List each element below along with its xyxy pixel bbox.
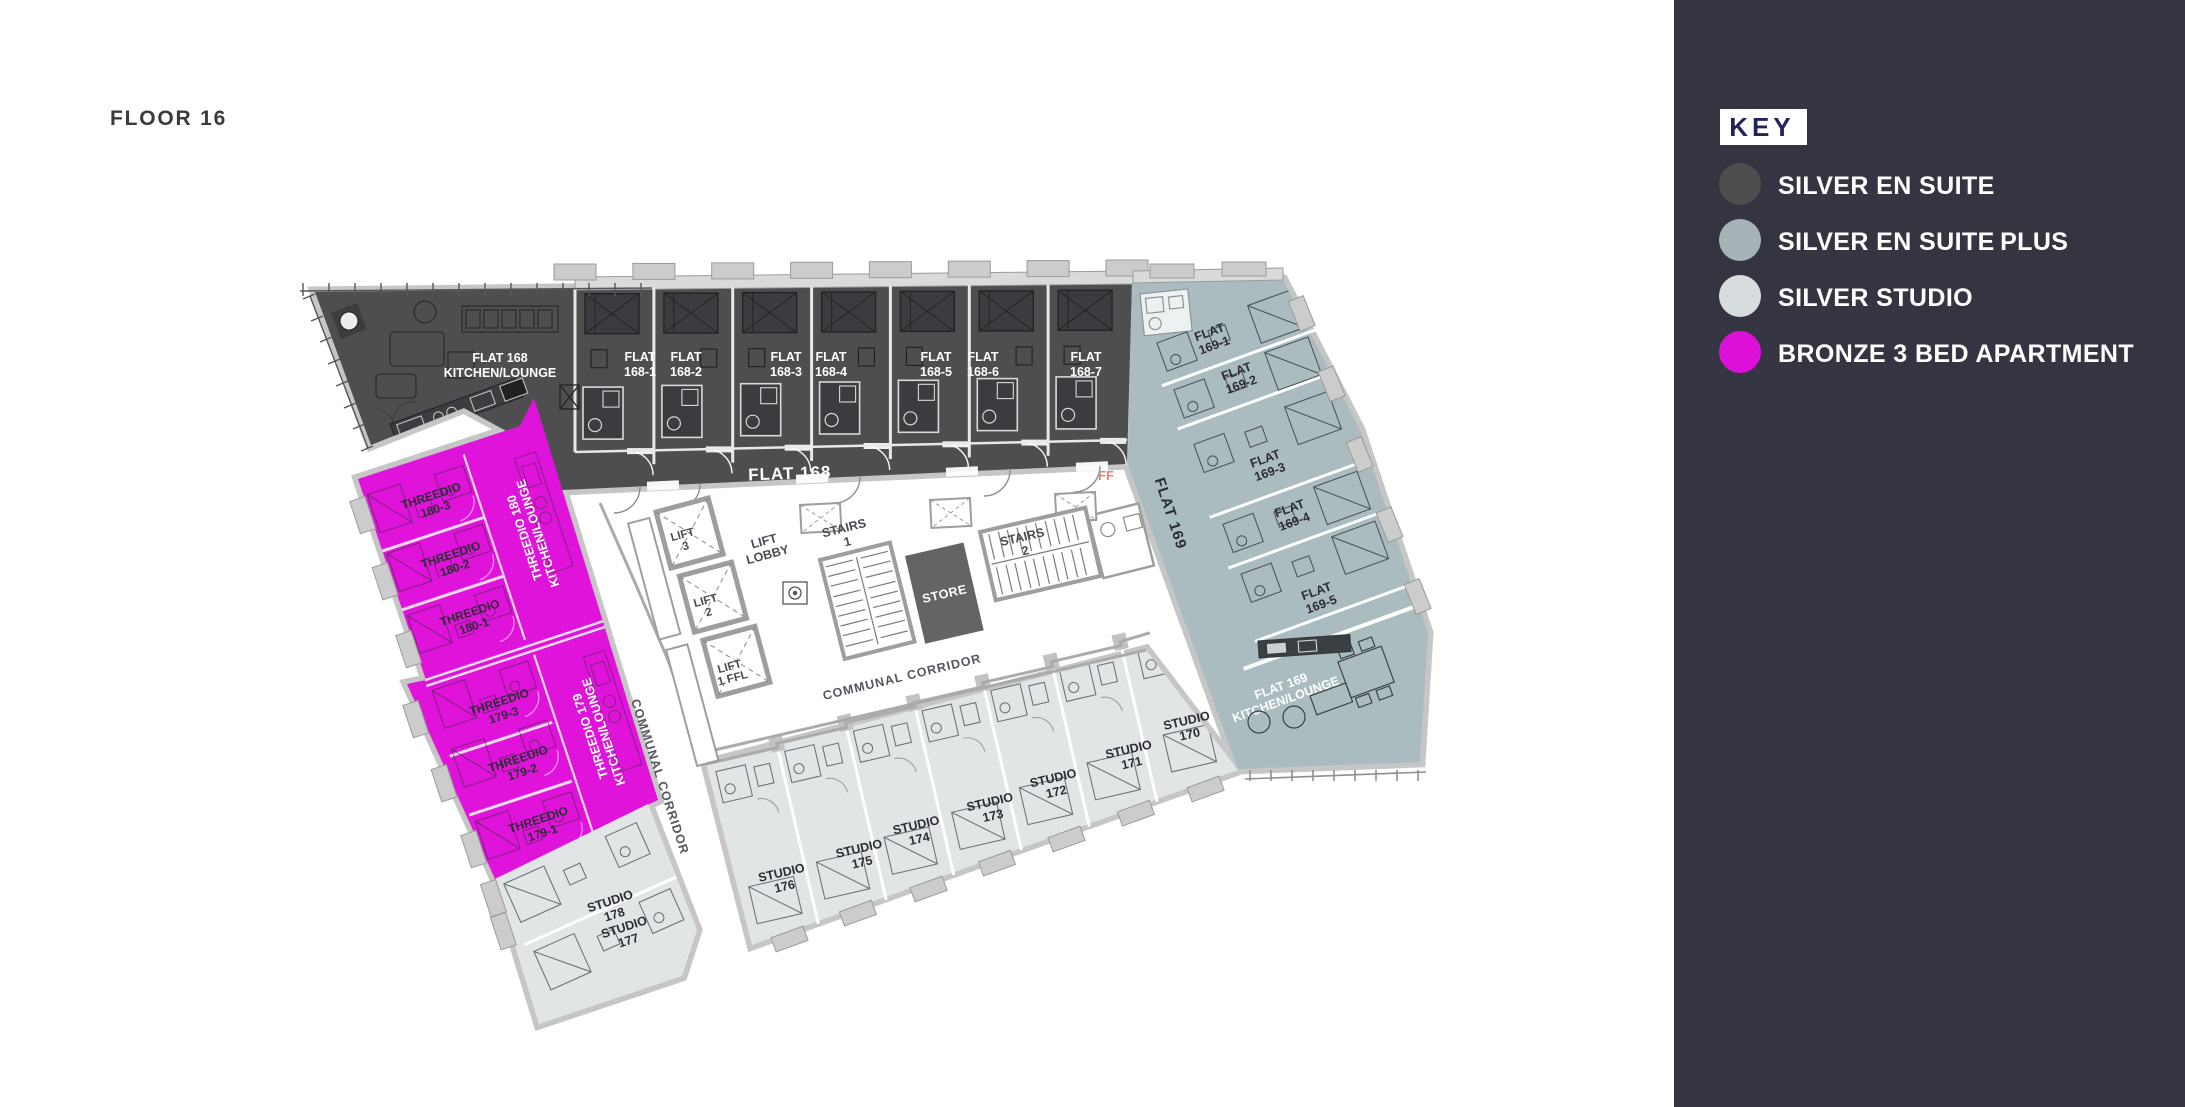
svg-text:BRONZE 3 BED APARTMENT: BRONZE 3 BED APARTMENT bbox=[1778, 340, 2134, 368]
svg-text:168-4: 168-4 bbox=[815, 365, 847, 379]
svg-text:FLAT: FLAT bbox=[1070, 350, 1101, 364]
svg-text:168-5: 168-5 bbox=[920, 365, 952, 379]
svg-text:SILVER EN SUITE PLUS: SILVER EN SUITE PLUS bbox=[1778, 228, 2068, 256]
svg-text:FLAT: FLAT bbox=[770, 350, 801, 364]
svg-text:168-6: 168-6 bbox=[967, 365, 999, 379]
svg-text:FLAT: FLAT bbox=[920, 350, 951, 364]
svg-text:FLAT: FLAT bbox=[967, 350, 998, 364]
svg-text:KEY: KEY bbox=[1729, 112, 1794, 142]
svg-text:SILVER STUDIO: SILVER STUDIO bbox=[1778, 284, 1973, 312]
svg-text:168-1: 168-1 bbox=[624, 365, 656, 379]
svg-text:FLOOR 16: FLOOR 16 bbox=[110, 107, 227, 130]
svg-text:FLAT: FLAT bbox=[670, 350, 701, 364]
svg-text:FLAT: FLAT bbox=[624, 350, 655, 364]
svg-text:SILVER EN SUITE: SILVER EN SUITE bbox=[1778, 172, 1995, 200]
svg-text:KITCHEN/LOUNGE: KITCHEN/LOUNGE bbox=[444, 366, 557, 380]
svg-text:FLAT 168: FLAT 168 bbox=[472, 351, 527, 365]
svg-text:FF: FF bbox=[1098, 468, 1114, 483]
svg-text:FLAT: FLAT bbox=[815, 350, 846, 364]
svg-text:168-7: 168-7 bbox=[1070, 365, 1102, 379]
svg-text:FLAT 168: FLAT 168 bbox=[748, 463, 832, 485]
svg-text:168-3: 168-3 bbox=[770, 365, 802, 379]
svg-text:168-2: 168-2 bbox=[670, 365, 702, 379]
